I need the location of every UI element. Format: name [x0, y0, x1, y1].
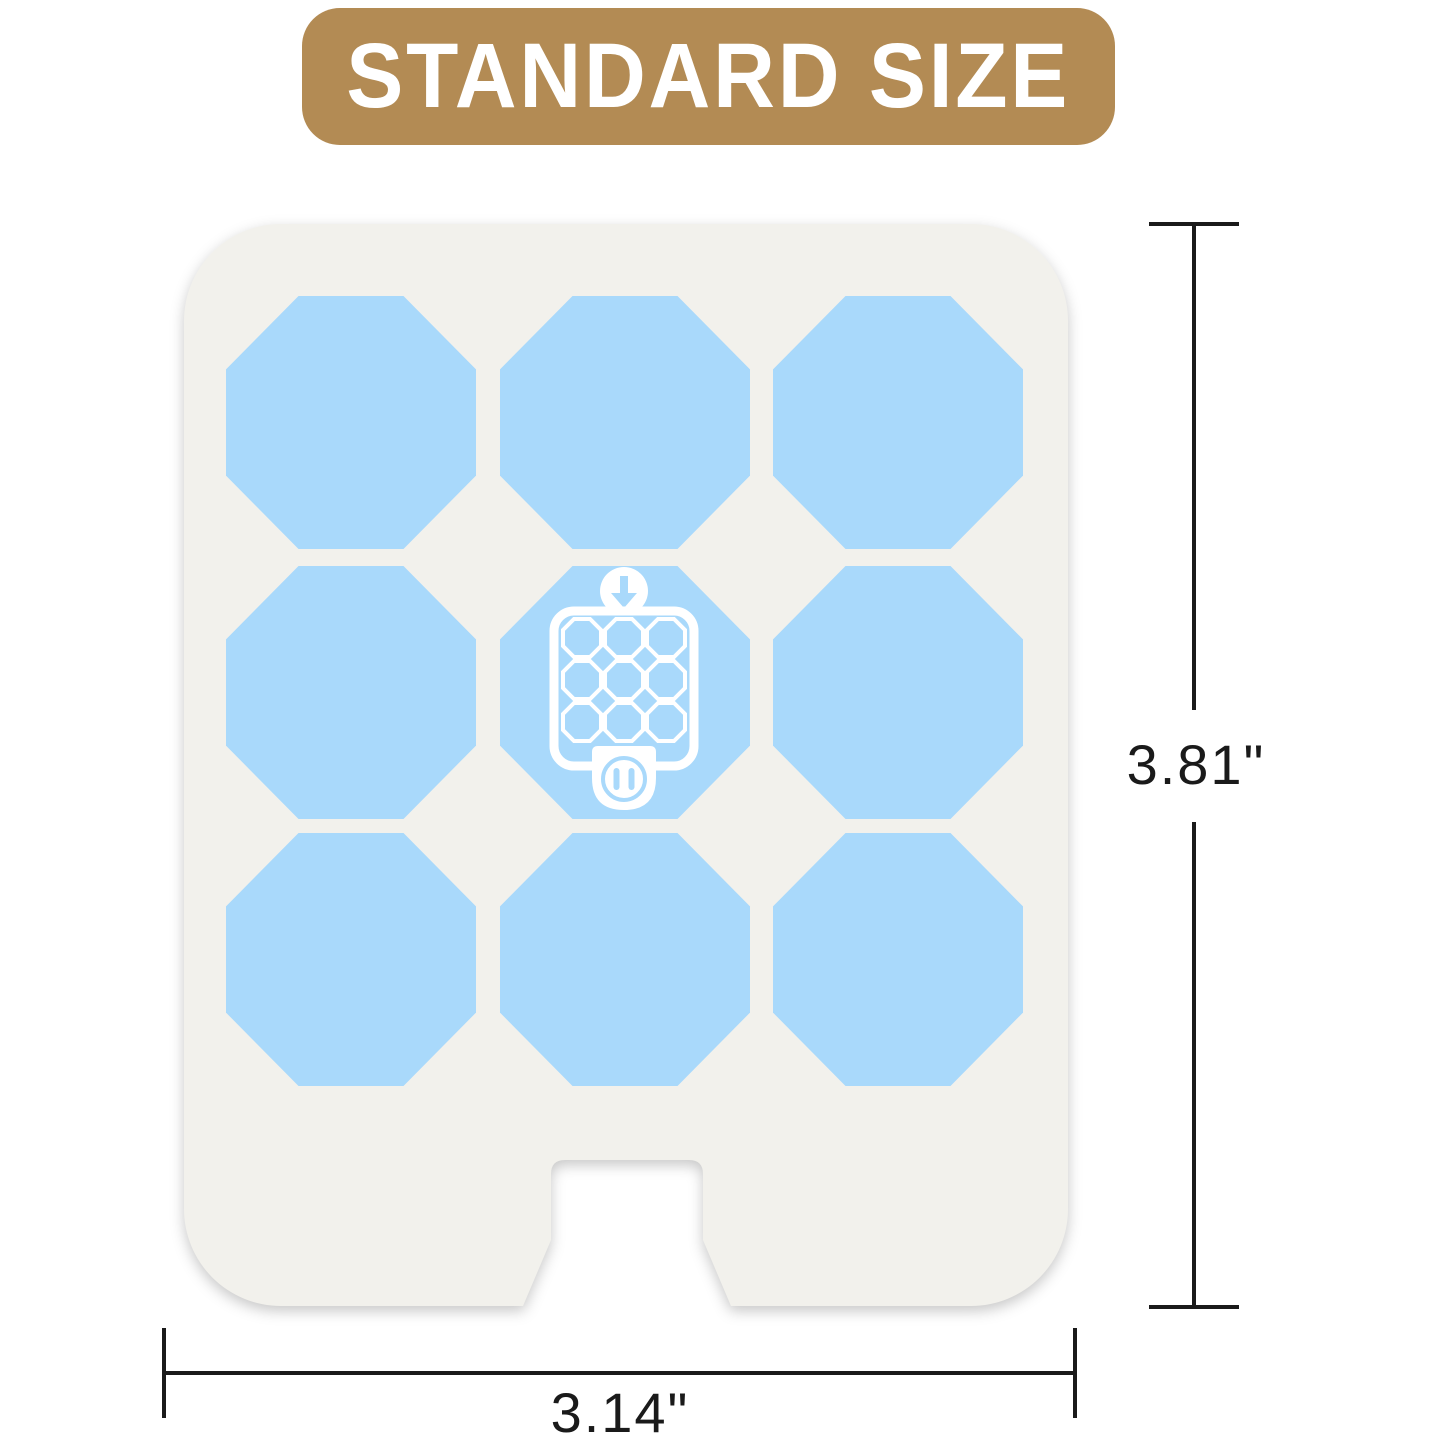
width-dimension-label: 3.14": [551, 1385, 690, 1434]
pad-octagon: [226, 296, 476, 549]
product-image: STANDARD SIZE: [0, 0, 1434, 1434]
pad-octagon: [226, 566, 476, 819]
refill-grid-icon: [554, 611, 694, 766]
height-dimension-line-upper: [1192, 224, 1196, 710]
pad-octagon: [773, 833, 1023, 1086]
outlet-plug-icon: [592, 746, 656, 810]
pad-octagon: [226, 833, 476, 1086]
width-dimension-line: [162, 1371, 1076, 1375]
pad-octagon: [773, 566, 1023, 819]
pad-octagon: [500, 296, 750, 549]
pad-octagon: [500, 833, 750, 1086]
height-dimension-line-lower: [1192, 822, 1196, 1308]
height-dimension-label: 3.81": [1127, 737, 1266, 793]
width-dimension-right-cap: [1073, 1328, 1077, 1418]
height-dimension-bottom-cap: [1149, 1305, 1239, 1309]
refill-pad-illustration: [0, 0, 1434, 1434]
pad-octagon: [773, 296, 1023, 549]
